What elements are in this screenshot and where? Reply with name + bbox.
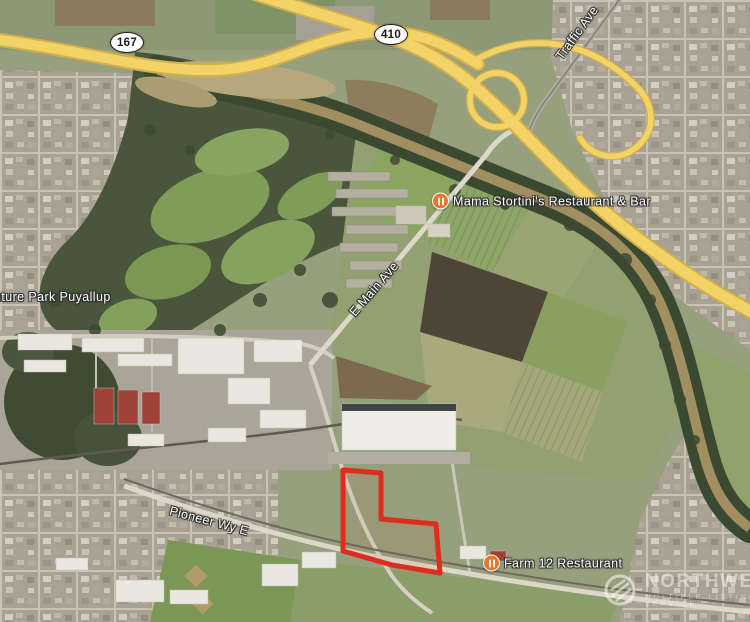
poi-mama-stortinis: Mama Stortini's Restaurant & Bar [432, 193, 651, 210]
warehouse-building [328, 404, 470, 464]
aerial-map-photo: 167 410 Traffic Ave E Main Ave Pioneer W… [0, 0, 750, 622]
restaurant-icon [432, 193, 449, 210]
place-label-park: nture Park Puyallup [0, 290, 111, 304]
restaurant-icon [483, 555, 500, 572]
route-shield-410: 410 [374, 24, 408, 45]
poi-label-mama-stortinis: Mama Stortini's Restaurant & Bar [453, 194, 651, 208]
poi-farm-12: Farm 12 Restaurant [483, 555, 622, 572]
route-shield-410-number: 410 [381, 29, 401, 41]
satellite-imagery [0, 0, 750, 622]
poi-label-farm-12: Farm 12 Restaurant [504, 556, 622, 570]
route-shield-167: 167 [110, 32, 144, 53]
route-shield-167-number: 167 [117, 37, 137, 49]
